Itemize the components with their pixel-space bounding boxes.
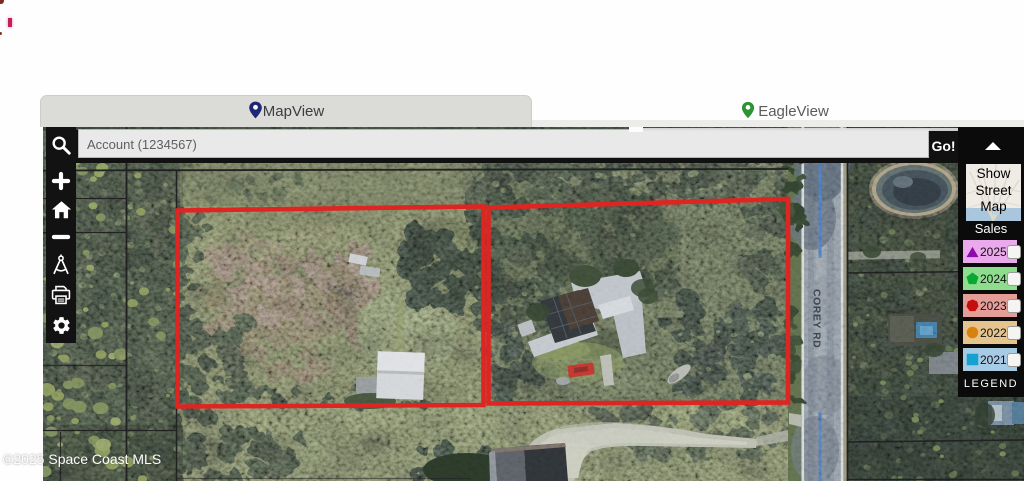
- svg-text:COREY RD: COREY RD: [811, 289, 823, 348]
